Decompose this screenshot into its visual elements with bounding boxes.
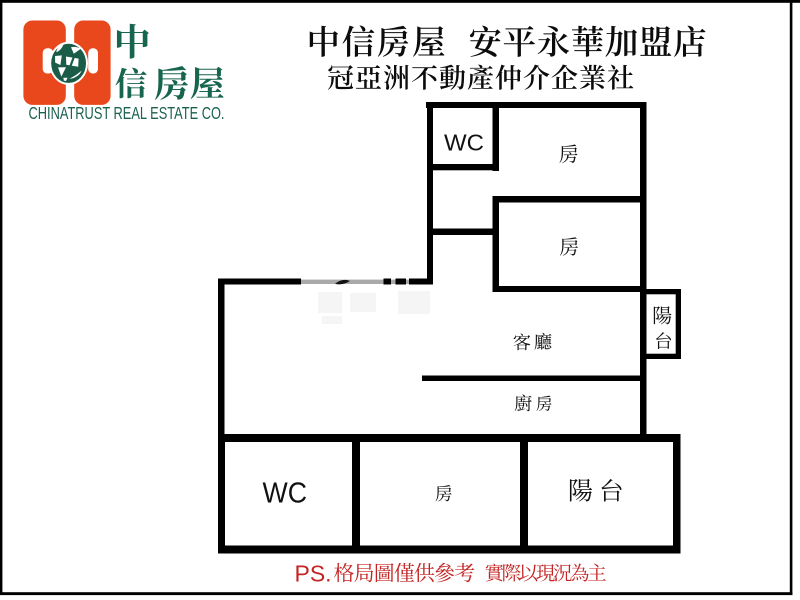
svg-text:CHINATRUST REAL ESTATE CO.: CHINATRUST REAL ESTATE CO. <box>29 103 225 123</box>
svg-text:WC: WC <box>263 478 308 510</box>
svg-text:WC: WC <box>444 130 484 156</box>
svg-text:PS.: PS. <box>295 561 332 587</box>
